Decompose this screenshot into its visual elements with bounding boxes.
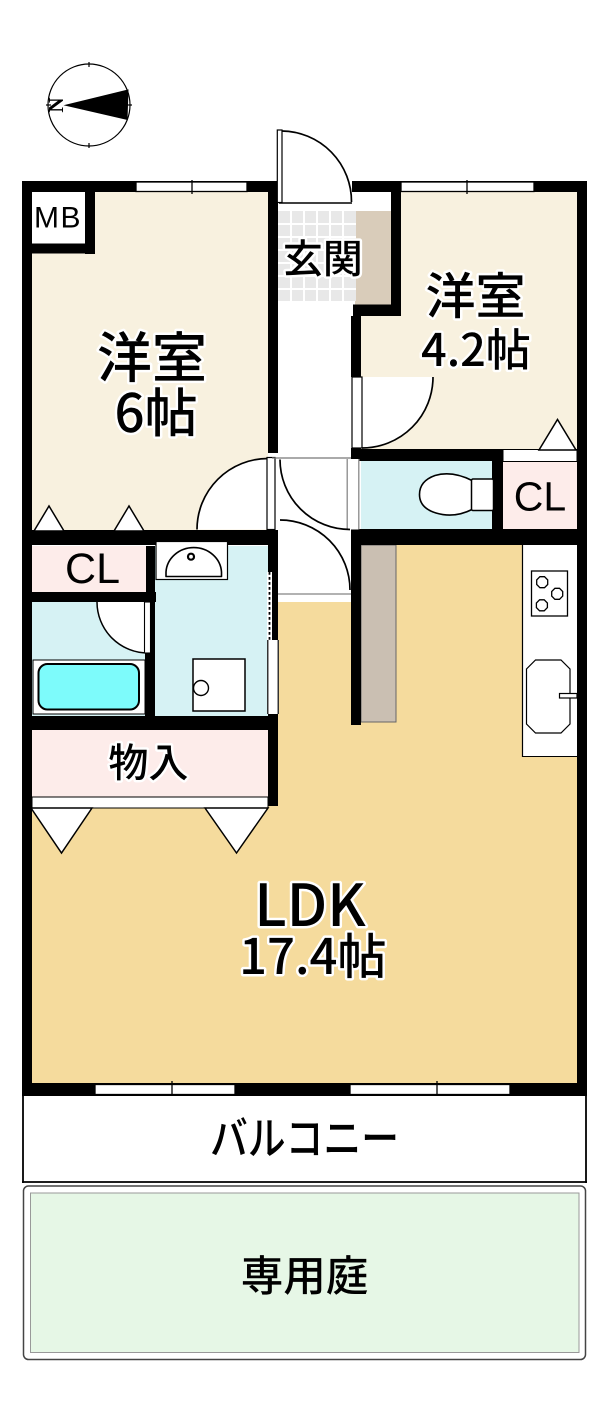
svg-text:CL: CL (514, 474, 566, 520)
svg-text:CL: CL (65, 545, 120, 593)
svg-text:MB: MB (34, 202, 82, 235)
